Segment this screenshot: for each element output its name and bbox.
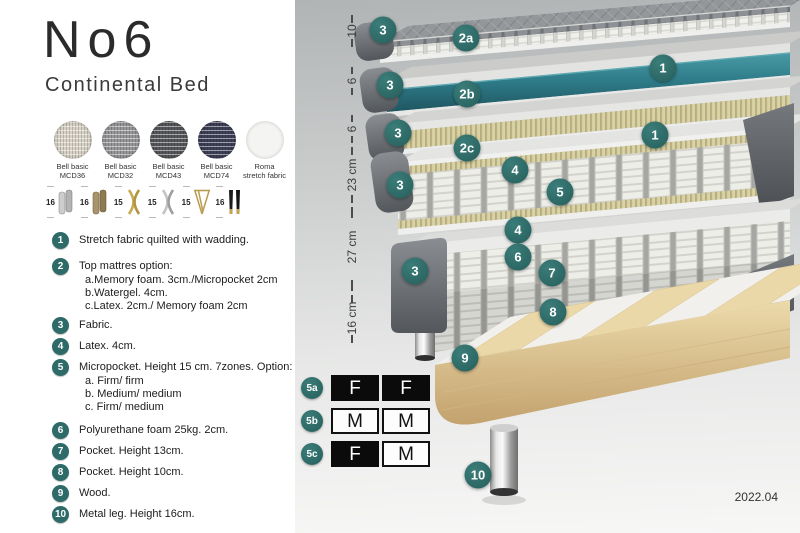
spec-text: Metal leg. Height 16cm. <box>79 506 195 521</box>
fabric-swatch-label: Bell basicMCD32 <box>104 163 136 180</box>
spec-text: Latex. 4cm. <box>79 338 136 353</box>
fabric-swatch-label: Bell basicMCD43 <box>152 163 184 180</box>
fabric-swatch-mcd43: Bell basicMCD43 <box>146 121 191 180</box>
spec-text: Top mattres option: a.Memory foam. 3cm./… <box>79 258 278 313</box>
ruler-dash <box>47 186 54 187</box>
spec-item-9: 9 Wood. <box>52 485 292 502</box>
dimension-label-27cm: 27 cm <box>345 231 359 264</box>
front-leg <box>482 424 526 505</box>
diagram-panel: 10 6 6 23 cm 27 cm 16 cm 3 2a 1 3 2b 1 3… <box>295 0 800 533</box>
firmness-row-5a: 5a F F <box>295 375 435 401</box>
cylinder-silver-leg-icon <box>56 187 76 217</box>
callout-2b: 2b <box>454 81 481 108</box>
firmness-cell: M <box>382 441 430 467</box>
firmness-row-5c: 5c F M <box>295 441 435 467</box>
product-title: No6 <box>43 10 159 70</box>
ruler-dash <box>183 186 190 187</box>
ruler-tick <box>351 67 353 74</box>
callout-3-base: 3 <box>402 258 429 285</box>
ruler-dash <box>216 217 223 218</box>
callout-3-watergel: 3 <box>377 72 404 99</box>
ruler-tick <box>351 115 353 122</box>
leg-height-label: 16 <box>216 198 225 207</box>
ruler-tick <box>351 15 353 23</box>
callout-3-latex: 3 <box>385 120 412 147</box>
spec-text: Pocket. Height 13cm. <box>79 443 184 458</box>
leg-option-cylinder-silver: 16 <box>46 186 76 218</box>
dimension-label-6cm-a: 6 <box>345 78 359 85</box>
ruler-dash <box>81 186 88 187</box>
spec-text: Pocket. Height 10cm. <box>79 464 184 479</box>
spec-subitems: a.Memory foam. 3cm./Micropocket 2cm b.Wa… <box>85 274 278 313</box>
fabric-swatch-label: Bell basicMCD36 <box>56 163 88 180</box>
infographic-canvas: No6 Continental Bed Bell basicMCD36 Bell… <box>0 0 800 533</box>
leg-option-cross-gold: 15 <box>114 186 144 218</box>
leg-height-label: 15 <box>148 198 157 207</box>
spec-item-4: 4 Latex. 4cm. <box>52 338 292 355</box>
callout-6: 6 <box>505 244 532 271</box>
callout-4-top: 4 <box>502 157 529 184</box>
spec-text: Fabric. <box>79 317 113 332</box>
firmness-badge-5a: 5a <box>301 377 323 399</box>
spec-item-3: 3 Fabric. <box>52 317 292 334</box>
dimension-label-16cm: 16 cm <box>345 302 359 335</box>
callout-2c: 2c <box>454 135 481 162</box>
spec-number-badge: 6 <box>52 422 69 439</box>
ruler-dash <box>115 217 122 218</box>
dimension-label-23cm: 23 cm <box>345 159 359 192</box>
spec-item-7: 7 Pocket. Height 13cm. <box>52 443 292 460</box>
spec-number-badge: 2 <box>52 258 69 275</box>
spec-text: Polyurethane foam 25kg. 2cm. <box>79 422 228 437</box>
spec-item-2: 2 Top mattres option: a.Memory foam. 3cm… <box>52 258 292 313</box>
info-panel: No6 Continental Bed Bell basicMCD36 Bell… <box>0 0 295 533</box>
ruler-dash <box>47 217 54 218</box>
fabric-swatch-label: Romastretch fabric <box>243 163 286 180</box>
ruler-dash <box>149 217 156 218</box>
ruler-dash <box>149 186 156 187</box>
spec-text: Micropocket. Height 15 cm. 7zones. Optio… <box>79 359 292 414</box>
spec-text: Stretch fabric quilted with wadding. <box>79 232 249 247</box>
firmness-cell: F <box>331 375 379 401</box>
ruler-dash <box>115 186 122 187</box>
spec-number-badge: 4 <box>52 338 69 355</box>
fabric-swatch-roma: Romastretch fabric <box>242 121 287 180</box>
spec-number-badge: 1 <box>52 232 69 249</box>
fabric-swatch-image <box>102 121 140 159</box>
callout-9: 9 <box>452 345 479 372</box>
base-dark-corner <box>391 238 447 333</box>
spec-number-badge: 10 <box>52 506 69 523</box>
callout-2a: 2a <box>453 25 480 52</box>
leg-option-tapered-black-gold: 16 <box>216 186 246 218</box>
spec-number-badge: 8 <box>52 464 69 481</box>
callout-1-lower: 1 <box>642 122 669 149</box>
cylinder-bronze-leg-icon <box>90 187 110 217</box>
cross-gold-leg-icon <box>124 187 144 217</box>
leg-height-label: 15 <box>114 198 123 207</box>
spec-number-badge: 7 <box>52 443 69 460</box>
fabric-swatch-mcd36: Bell basicMCD36 <box>50 121 95 180</box>
spec-number-badge: 3 <box>52 317 69 334</box>
firmness-badge-5b: 5b <box>301 410 323 432</box>
spec-number-badge: 5 <box>52 359 69 376</box>
callout-3-mattress: 3 <box>387 172 414 199</box>
callout-1-upper: 1 <box>650 55 677 82</box>
callout-8: 8 <box>540 299 567 326</box>
version-stamp: 2022.04 <box>735 490 778 504</box>
callout-10: 10 <box>465 462 492 489</box>
spec-subitems: a. Firm/ firm b. Medium/ medium c. Firm/… <box>85 375 292 414</box>
spec-text: Wood. <box>79 485 111 500</box>
leg-height-label: 16 <box>46 198 55 207</box>
leg-height-label: 15 <box>182 198 191 207</box>
fabric-swatch-image <box>198 121 236 159</box>
spec-item-1: 1 Stretch fabric quilted with wadding. <box>52 232 292 249</box>
firmness-cell: M <box>382 408 430 434</box>
callout-5: 5 <box>547 179 574 206</box>
fabric-swatch-row: Bell basicMCD36 Bell basicMCD32 Bell bas… <box>50 121 287 180</box>
cross-silver-leg-icon <box>158 187 178 217</box>
product-subtitle: Continental Bed <box>45 74 210 97</box>
hairpin-gold-leg-icon <box>192 187 212 217</box>
spec-number-badge: 9 <box>52 485 69 502</box>
ruler-dash <box>216 186 223 187</box>
tapered-black-gold-leg-icon <box>225 187 245 217</box>
ruler-tick <box>351 88 353 95</box>
ruler-tick <box>351 335 353 343</box>
ruler-tick <box>351 147 353 155</box>
fabric-swatch-mcd32: Bell basicMCD32 <box>98 121 143 180</box>
firmness-cell: F <box>331 441 379 467</box>
callout-7: 7 <box>539 260 566 287</box>
spec-item-10: 10 Metal leg. Height 16cm. <box>52 506 292 523</box>
fabric-swatch-label: Bell basicMCD74 <box>200 163 232 180</box>
leg-option-hairpin-gold: 15 <box>182 186 212 218</box>
leg-options-row: 16 16 15 15 <box>46 186 245 218</box>
fabric-swatch-image <box>150 121 188 159</box>
dimension-label-6cm-b: 6 <box>345 126 359 133</box>
leg-option-cross-silver: 15 <box>148 186 178 218</box>
spec-list: 1 Stretch fabric quilted with wadding. 2… <box>52 232 292 527</box>
firmness-cell: F <box>382 375 430 401</box>
callout-4-bottom: 4 <box>505 217 532 244</box>
leg-option-cylinder-bronze: 16 <box>80 186 110 218</box>
callout-3-top: 3 <box>370 17 397 44</box>
ruler-tick <box>351 207 353 218</box>
ruler-dash <box>183 217 190 218</box>
ruler-tick <box>351 136 353 143</box>
firmness-cell: M <box>331 408 379 434</box>
fabric-swatch-image <box>246 121 284 159</box>
ruler-tick <box>351 39 353 47</box>
spec-item-6: 6 Polyurethane foam 25kg. 2cm. <box>52 422 292 439</box>
dimension-label-10cm: 10 <box>345 24 359 37</box>
spec-item-8: 8 Pocket. Height 10cm. <box>52 464 292 481</box>
firmness-badge-5c: 5c <box>301 443 323 465</box>
ruler-tick <box>351 195 353 203</box>
spec-item-5: 5 Micropocket. Height 15 cm. 7zones. Opt… <box>52 359 292 414</box>
ruler-dash <box>81 217 88 218</box>
leg-height-label: 16 <box>80 198 89 207</box>
fabric-swatch-image <box>54 121 92 159</box>
ruler-tick <box>351 280 353 291</box>
firmness-row-5b: 5b M M <box>295 408 435 434</box>
fabric-swatch-mcd74: Bell basicMCD74 <box>194 121 239 180</box>
